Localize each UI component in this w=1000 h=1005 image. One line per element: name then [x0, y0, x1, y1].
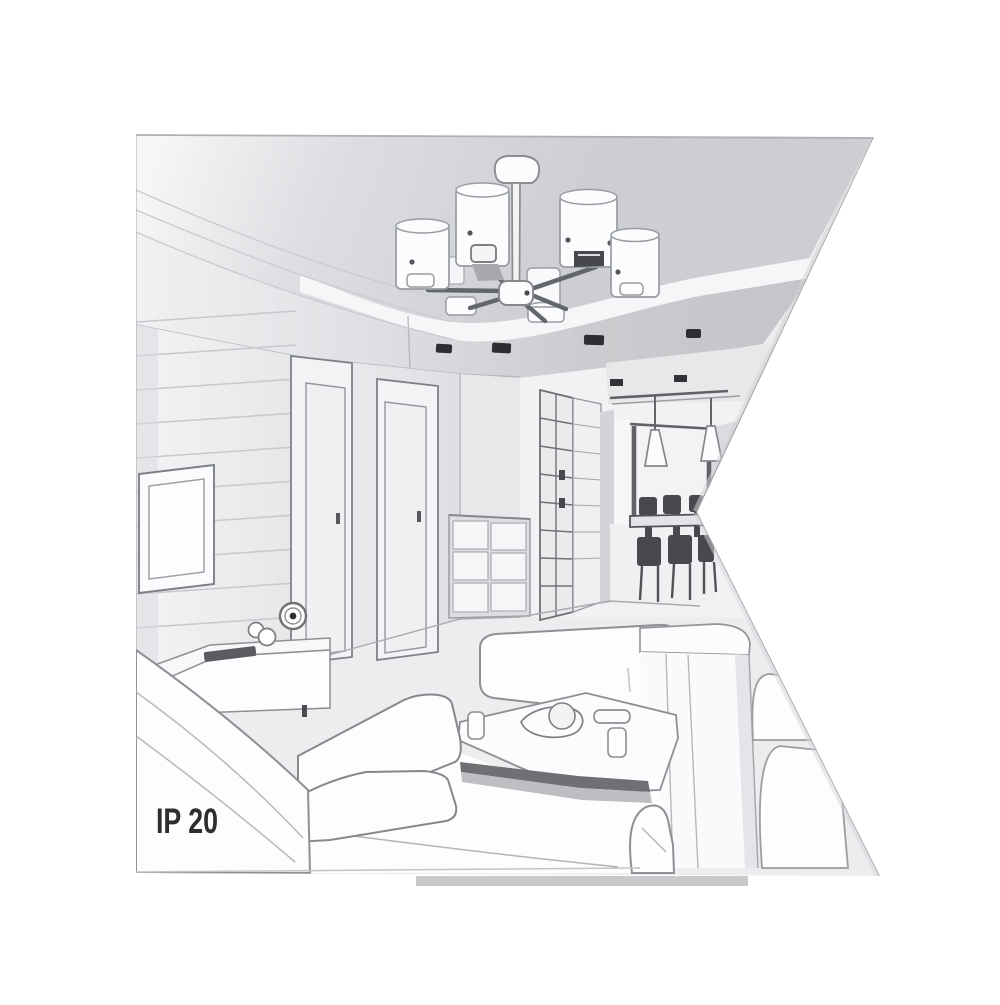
svg-text:IP 20: IP 20 — [156, 802, 218, 841]
